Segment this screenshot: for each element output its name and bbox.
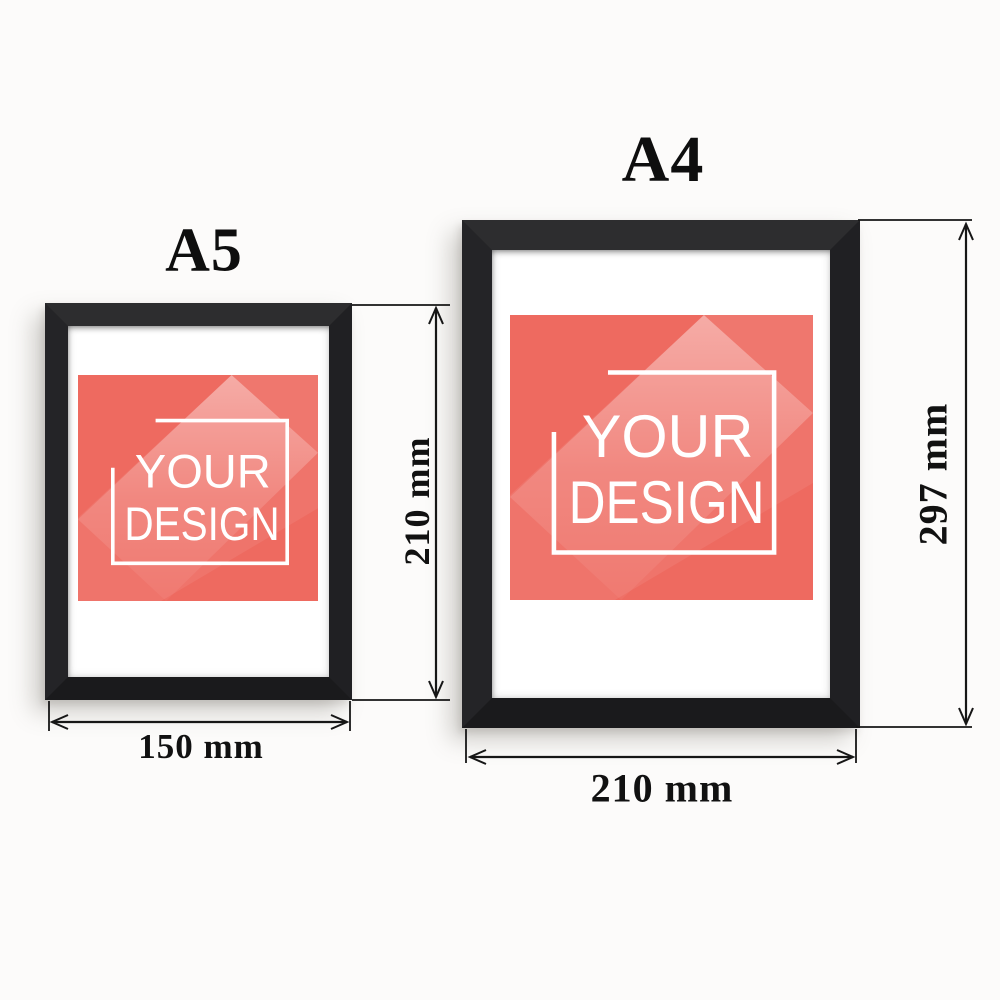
- a5-paper: YOUR DESIGN: [68, 326, 329, 677]
- a5-width-label: 150 mm: [138, 727, 264, 767]
- a5-picture-frame: YOUR DESIGN: [45, 303, 352, 700]
- a5-height-label: 210 mm: [396, 437, 438, 566]
- a4-size-title: A4: [622, 122, 705, 198]
- a4-poster-text-line2: DESIGN: [569, 468, 765, 536]
- a4-width-dimension: [466, 729, 856, 763]
- a5-poster-text-line2: DESIGN: [124, 498, 279, 551]
- a5-size-title: A5: [165, 216, 243, 287]
- a4-poster-design: YOUR DESIGN: [510, 315, 813, 600]
- frame-size-mockup: A5 YOUR DESIGN A4: [0, 0, 1000, 1000]
- a4-picture-frame: YOUR DESIGN: [462, 220, 860, 728]
- a4-width-label: 210 mm: [591, 765, 734, 812]
- a5-poster-design: YOUR DESIGN: [78, 375, 318, 601]
- a4-height-label: 297 mm: [910, 403, 957, 546]
- a4-paper: YOUR DESIGN: [492, 250, 830, 698]
- a5-poster-text-line1: YOUR: [135, 446, 271, 499]
- a4-poster-text-line1: YOUR: [582, 402, 754, 470]
